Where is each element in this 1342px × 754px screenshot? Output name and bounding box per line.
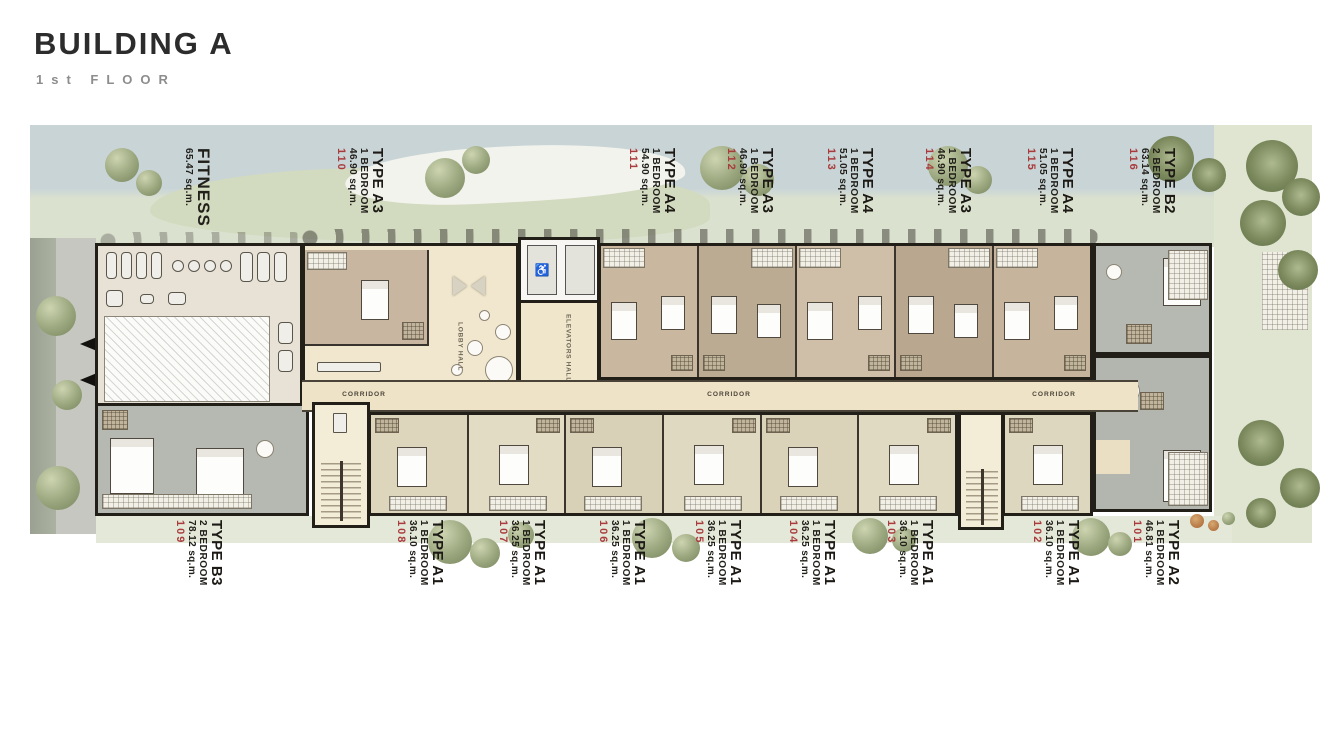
- shrub: [1208, 520, 1219, 531]
- bathroom: [868, 355, 890, 371]
- unit-label-101: TYPE A2 1 BEDROOM 46.81 sq.m. 101: [1130, 520, 1182, 586]
- unit-area: 36.10 sq.m.: [1043, 520, 1054, 586]
- balcony: [684, 496, 742, 511]
- tree: [105, 148, 139, 182]
- room-name: FITNESS: [194, 148, 213, 227]
- unit-label-103: TYPE A1 1 BEDROOM 36.10 sq.m. 103: [884, 520, 936, 586]
- tree: [462, 146, 490, 174]
- bed: [499, 445, 529, 485]
- unit-113-a4: [795, 246, 893, 377]
- fitness-mat: [104, 316, 270, 402]
- balcony: [102, 494, 252, 509]
- unit-107-a1: [467, 415, 565, 513]
- unit-number: 101: [1130, 520, 1143, 586]
- balcony: [879, 496, 937, 511]
- utility-room: [333, 413, 347, 433]
- unit-bedroom: 2 BEDROOM: [197, 520, 208, 586]
- bed: [1054, 296, 1078, 330]
- unit-label-105: TYPE A1 1 BEDROOM 36.25 sq.m. 105: [692, 520, 744, 586]
- unit-number: 102: [1030, 520, 1043, 586]
- unit-number: 115: [1024, 148, 1037, 214]
- entry-nook: [1096, 440, 1130, 474]
- unit-bedroom: 1 BEDROOM: [908, 520, 919, 586]
- elevator-box: ♿: [518, 237, 600, 303]
- unit-type: TYPE A3: [759, 148, 776, 214]
- gym-equipment: [136, 252, 147, 279]
- palm-tree: [1246, 498, 1276, 528]
- unit-bedroom: 1 BEDROOM: [946, 148, 957, 214]
- unit-115-a4: [992, 246, 1090, 377]
- tree: [1108, 532, 1132, 556]
- corridor-label: CORRIDOR: [338, 391, 391, 398]
- unit-type: TYPE B2: [1161, 148, 1178, 214]
- gym-equipment: [188, 260, 200, 272]
- unit-type: TYPE A1: [531, 520, 548, 586]
- bed: [908, 296, 934, 334]
- tree: [136, 170, 162, 196]
- unit-area: 36.25 sq.m.: [609, 520, 620, 586]
- lobby-hall-label: LOBBY HALL: [457, 322, 464, 371]
- unit-110-a3: [305, 250, 429, 346]
- unit-label-114: TYPE A3 1 BEDROOM 46.90 sq.m. 114: [922, 148, 974, 214]
- unit-type: TYPE A1: [631, 520, 648, 586]
- balcony: [751, 248, 793, 268]
- unit-area: 46.81 sq.m.: [1143, 520, 1154, 586]
- tree: [425, 158, 465, 198]
- bathroom: [1126, 324, 1152, 344]
- gym-equipment: [140, 294, 154, 304]
- unit-area: 36.25 sq.m.: [799, 520, 810, 586]
- reception-desk: [317, 362, 381, 372]
- balcony: [389, 496, 447, 511]
- bathroom: [402, 322, 424, 340]
- unit-label-111: TYPE A4 1 BEDROOM 54.90 sq.m. 111: [626, 148, 678, 214]
- balcony: [996, 248, 1038, 268]
- bed: [694, 445, 724, 485]
- stair-rail: [981, 469, 984, 525]
- palm-tree: [1278, 250, 1318, 290]
- lobby-table: [479, 310, 490, 321]
- unit-104-a1: [760, 415, 858, 513]
- unit-label-112: TYPE A3 1 BEDROOM 46.90 sq.m. 112: [724, 148, 776, 214]
- bathroom: [900, 355, 922, 371]
- unit-number: 110: [334, 148, 347, 214]
- stairwell: [312, 402, 370, 528]
- unit-105-a1: [662, 415, 760, 513]
- bathroom: [536, 418, 560, 433]
- unit-bedroom: 1 BEDROOM: [1048, 148, 1059, 214]
- tree: [52, 380, 82, 410]
- elevators-hall-label: ELEVATORS HALL: [565, 314, 572, 382]
- unit-bedroom: 1 BEDROOM: [418, 520, 429, 586]
- unit-area: 36.25 sq.m.: [509, 520, 520, 586]
- bed: [110, 438, 154, 494]
- tree: [36, 466, 80, 510]
- stairwell: [958, 412, 1004, 530]
- corridor-label: CORRIDOR: [1028, 391, 1081, 398]
- unit-label-102: TYPE A1 1 BEDROOM 36.10 sq.m. 102: [1030, 520, 1082, 586]
- unit-type: TYPE A1: [1065, 520, 1082, 586]
- locker: [278, 350, 293, 372]
- terrace: [1168, 452, 1208, 506]
- bathroom: [570, 418, 594, 433]
- unit-area: 46.90 sq.m.: [935, 148, 946, 214]
- unit-area: 54.90 sq.m.: [639, 148, 650, 214]
- unit-bedroom: 1 BEDROOM: [520, 520, 531, 586]
- bed: [889, 445, 919, 485]
- balcony: [799, 248, 841, 268]
- bathroom: [1140, 392, 1164, 410]
- palm-tree: [1282, 178, 1320, 216]
- elevator-cell: [565, 245, 595, 295]
- gym-equipment: [106, 290, 123, 307]
- palm-tree: [1280, 468, 1320, 508]
- gym-equipment: [274, 252, 287, 282]
- unit-bedroom: 1 BEDROOM: [1154, 520, 1165, 586]
- unit-label-108: TYPE A1 1 BEDROOM 36.10 sq.m. 108: [394, 520, 446, 586]
- unit-label-110: TYPE A3 1 BEDROOM 46.90 sq.m. 110: [334, 148, 386, 214]
- unit-label-115: TYPE A4 1 BEDROOM 51.05 sq.m. 115: [1024, 148, 1076, 214]
- fitness-label: FITNESS 65.47 sq.m.: [183, 148, 213, 227]
- unit-type: TYPE A2: [1165, 520, 1182, 586]
- unit-area: 51.05 sq.m.: [837, 148, 848, 214]
- palm-tree: [1240, 200, 1286, 246]
- unit-number: 105: [692, 520, 705, 586]
- dining-table: [256, 440, 274, 458]
- unit-type: TYPE A1: [821, 520, 838, 586]
- unit-114-a3: [894, 246, 992, 377]
- lobby-table: [467, 340, 483, 356]
- unit-number: 107: [496, 520, 509, 586]
- balcony: [1021, 496, 1079, 511]
- balcony: [584, 496, 642, 511]
- bathroom: [671, 355, 693, 371]
- bathroom: [1009, 418, 1033, 433]
- unit-label-106: TYPE A1 1 BEDROOM 36.25 sq.m. 106: [596, 520, 648, 586]
- unit-area: 36.25 sq.m.: [705, 520, 716, 586]
- unit-number: 116: [1126, 148, 1139, 214]
- terrace: [1168, 250, 1208, 300]
- decor-bowtie: [453, 276, 467, 296]
- unit-bedroom: 1 BEDROOM: [358, 148, 369, 214]
- balcony: [489, 496, 547, 511]
- bathroom: [1064, 355, 1086, 371]
- bed: [1033, 445, 1063, 485]
- unit-type: TYPE A1: [429, 520, 446, 586]
- balcony: [780, 496, 838, 511]
- unit-label-107: TYPE A1 1 BEDROOM 36.25 sq.m. 107: [496, 520, 548, 586]
- unit-number: 113: [824, 148, 837, 214]
- unit-type: TYPE A3: [957, 148, 974, 214]
- gym-equipment: [168, 292, 186, 305]
- tree: [852, 518, 888, 554]
- unit-type: TYPE A4: [661, 148, 678, 214]
- gym-equipment: [121, 252, 132, 279]
- tree: [36, 296, 76, 336]
- unit-area: 46.90 sq.m.: [347, 148, 358, 214]
- unit-type: TYPE B3: [208, 520, 225, 586]
- gym-equipment: [151, 252, 162, 279]
- lobby-table: [495, 324, 511, 340]
- gym-equipment: [172, 260, 184, 272]
- locker: [278, 322, 293, 344]
- gym-equipment: [257, 252, 270, 282]
- page-title: BUILDING A: [34, 26, 234, 62]
- unit-number: 103: [884, 520, 897, 586]
- bed: [807, 302, 833, 340]
- gym-equipment: [204, 260, 216, 272]
- stair-rail: [340, 461, 343, 521]
- bed: [661, 296, 685, 330]
- bathroom: [375, 418, 399, 433]
- unit-area: 36.10 sq.m.: [407, 520, 418, 586]
- unit-number: 114: [922, 148, 935, 214]
- lower-units-row: [368, 412, 958, 516]
- bathroom: [703, 355, 725, 371]
- unit-number: 104: [786, 520, 799, 586]
- balcony: [307, 252, 347, 270]
- unit-area: 63.14 sq.m.: [1139, 148, 1150, 214]
- decor-bowtie: [471, 276, 485, 296]
- bed: [361, 280, 389, 320]
- upper-units-row: [598, 243, 1093, 380]
- unit-number: 112: [724, 148, 737, 214]
- unit-bedroom: 1 BEDROOM: [1054, 520, 1065, 586]
- wheelchair-icon: ♿: [535, 263, 550, 277]
- unit-type: TYPE A1: [727, 520, 744, 586]
- bed: [611, 302, 637, 340]
- unit-label-113: TYPE A4 1 BEDROOM 51.05 sq.m. 113: [824, 148, 876, 214]
- gym-equipment: [240, 252, 253, 282]
- unit-108-a1: [371, 415, 467, 513]
- bed: [397, 447, 427, 487]
- elevator-cell: ♿: [527, 245, 557, 295]
- unit-label-104: TYPE A1 1 BEDROOM 36.25 sq.m. 104: [786, 520, 838, 586]
- balcony: [948, 248, 990, 268]
- unit-bedroom: 1 BEDROOM: [650, 148, 661, 214]
- unit-area: 46.90 sq.m.: [737, 148, 748, 214]
- shrub: [1222, 512, 1235, 525]
- unit-bedroom: 1 BEDROOM: [716, 520, 727, 586]
- unit-area: 36.10 sq.m.: [897, 520, 908, 586]
- unit-112-a3: [697, 246, 795, 377]
- dining-table: [1106, 264, 1122, 280]
- unit-bedroom: 2 BEDROOM: [1150, 148, 1161, 214]
- corridor-label: CORRIDOR: [703, 391, 756, 398]
- unit-bedroom: 1 BEDROOM: [748, 148, 759, 214]
- palm-tree: [1238, 420, 1284, 466]
- bed: [711, 296, 737, 334]
- unit-103-a1: [857, 415, 955, 513]
- unit-106-a1: [564, 415, 662, 513]
- unit-type: TYPE A4: [1059, 148, 1076, 214]
- gym-equipment: [220, 260, 232, 272]
- bed: [757, 304, 781, 338]
- unit-area: 51.05 sq.m.: [1037, 148, 1048, 214]
- unit-bedroom: 1 BEDROOM: [620, 520, 631, 586]
- unit-type: TYPE A4: [859, 148, 876, 214]
- bed: [592, 447, 622, 487]
- room-area: 65.47 sq.m.: [183, 148, 194, 227]
- gym-equipment: [106, 252, 117, 279]
- bathroom: [102, 410, 128, 430]
- unit-type: TYPE A1: [919, 520, 936, 586]
- unit-111-a4: [601, 246, 697, 377]
- palm-tree: [1192, 158, 1226, 192]
- bathroom: [766, 418, 790, 433]
- shrub: [1190, 514, 1204, 528]
- unit-label-109: TYPE B3 2 BEDROOM 78.12 sq.m. 109: [173, 520, 225, 586]
- unit-bedroom: 1 BEDROOM: [848, 148, 859, 214]
- fitness-room: [95, 243, 303, 406]
- floorplan-page: BUILDING A 1st FLOOR: [0, 0, 1342, 754]
- unit-number: 111: [626, 148, 639, 214]
- unit-number: 109: [173, 520, 186, 586]
- unit-type: TYPE A3: [369, 148, 386, 214]
- unit-label-116: TYPE B2 2 BEDROOM 63.14 sq.m. 116: [1126, 148, 1178, 214]
- bathroom: [927, 418, 951, 433]
- unit-109-b3: [95, 403, 309, 516]
- unit-number: 108: [394, 520, 407, 586]
- bed: [858, 296, 882, 330]
- unit-number: 106: [596, 520, 609, 586]
- unit-area: 78.12 sq.m.: [186, 520, 197, 586]
- bed: [954, 304, 978, 338]
- bathroom: [732, 418, 756, 433]
- unit-bedroom: 1 BEDROOM: [810, 520, 821, 586]
- bed: [788, 447, 818, 487]
- bed: [1004, 302, 1030, 340]
- unit-102-a1: [1002, 412, 1093, 516]
- balcony: [603, 248, 645, 268]
- floor-subtitle: 1st FLOOR: [36, 72, 176, 87]
